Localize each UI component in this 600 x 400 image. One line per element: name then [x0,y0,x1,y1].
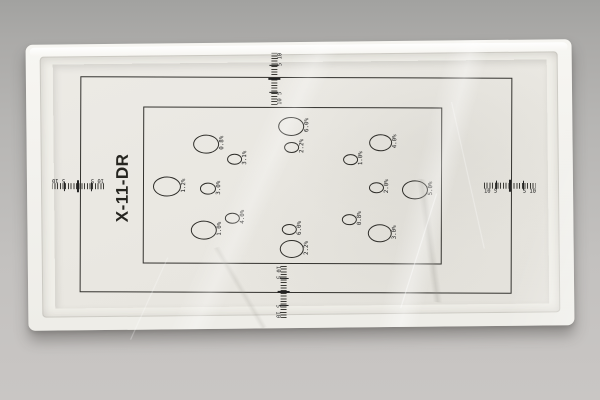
centering-scale-left: 10 55 10 [51,177,105,191]
circle-outline [341,214,356,225]
circle-outline [153,176,181,196]
circle-label: 4.0% [393,134,399,148]
circle-field: 6.0%0.8%3.1%2.2%1.0%4.0%1.2%3.0%2.0%5.0%… [54,61,548,63]
circle-label: 2.0% [385,179,391,193]
centering-scale-top: 10 55 10 [269,52,283,106]
circle-label: 6.0% [305,118,311,132]
circle-label: 2.2% [300,139,306,153]
circle-label: 1.0% [218,222,224,236]
circle-outline [224,212,239,223]
circle-label: 2.2% [305,241,311,255]
circle-label: 3.1% [243,151,249,165]
test-plate: X-11-DR 10 55 10 10 55 10 [26,39,575,331]
circle-outline [402,180,428,199]
circle-outline [369,134,392,151]
circle-outline [227,153,242,164]
centering-scale-bottom: 10 55 10 [275,265,289,319]
circle-outline [281,223,296,234]
circle-label: 3.0% [393,225,399,239]
printed-test-sheet: X-11-DR 10 55 10 10 55 10 [53,59,550,308]
circle-label: 1.2% [182,179,188,193]
circle-label: 4.0% [240,210,246,224]
circle-outline [368,224,392,242]
test-pattern: X-11-DR 10 55 10 10 55 10 [54,61,549,307]
circle-label: 5.0% [429,181,435,195]
ruler-ticks [52,183,104,189]
circle-outline [191,220,217,239]
centering-scale-right: 10 55 10 [483,181,537,195]
photo-background: X-11-DR 10 55 10 10 55 10 [0,0,600,400]
circle-label: 1.0% [359,151,365,165]
circle-label: 0.8% [357,211,363,225]
circle-label: 0.8% [220,136,226,150]
circle-outline [368,182,383,193]
circle-outline [278,116,304,135]
ruler-ticks [281,266,287,318]
circle-outline [193,134,219,153]
circle-label: 3.0% [217,181,223,195]
circle-outline [284,141,299,152]
circle-outline [200,183,216,195]
plate-title-text: X-11-DR [113,153,130,222]
circle-label: 6.0% [297,221,303,235]
ruler-ticks [484,183,536,189]
circle-outline [280,240,304,258]
circle-outline [343,154,358,165]
ruler-ticks [271,53,277,105]
